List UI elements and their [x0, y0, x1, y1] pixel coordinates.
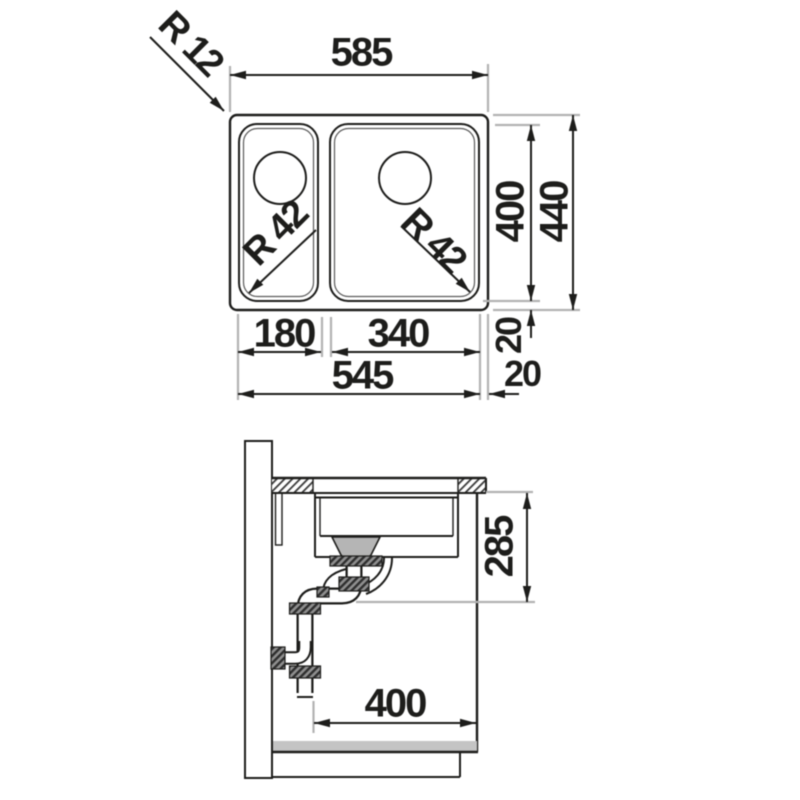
dim-left-bowl-width-label: 180 — [254, 312, 315, 357]
drawing-geometry — [0, 0, 800, 800]
strainer-locknut — [330, 556, 382, 566]
drain-hole-left — [254, 152, 306, 204]
dim-right-bowl-width-label: 340 — [368, 312, 429, 357]
countertop — [272, 478, 486, 493]
pipe-joint-upper — [290, 603, 321, 614]
dim-bowl-depth-label: 400 — [489, 182, 534, 243]
pipe-joint-lower — [290, 666, 321, 678]
wall-socket-collar — [271, 647, 285, 669]
sink-technical-drawing: 585 R 12 R 42 R 42 400 440 20 180 340 54… — [0, 0, 800, 800]
dim-overall-depth-label: 440 — [533, 182, 578, 243]
drawing-layer: 585 R 12 R 42 R 42 400 440 20 180 340 54… — [0, 0, 800, 800]
wall-hatch — [245, 441, 272, 778]
dim-under-counter-height-label: 285 — [478, 517, 523, 578]
dim-rear-rim-label: 20 — [488, 318, 530, 354]
trap-bend-nut — [317, 587, 329, 597]
wall-rail — [276, 493, 283, 545]
drain-hole-right — [379, 152, 431, 204]
section-view — [245, 441, 535, 778]
dim-cabinet-depth-label: 400 — [365, 682, 426, 727]
bowl-right-outline — [330, 124, 479, 301]
dim-overall-width-label: 585 — [331, 31, 392, 76]
dim-inner-width-label: 545 — [332, 354, 393, 399]
cabinet-shadow-bar — [273, 741, 477, 752]
trap-coupling-nut — [339, 577, 369, 591]
dim-side-rim-label: 20 — [504, 353, 540, 395]
